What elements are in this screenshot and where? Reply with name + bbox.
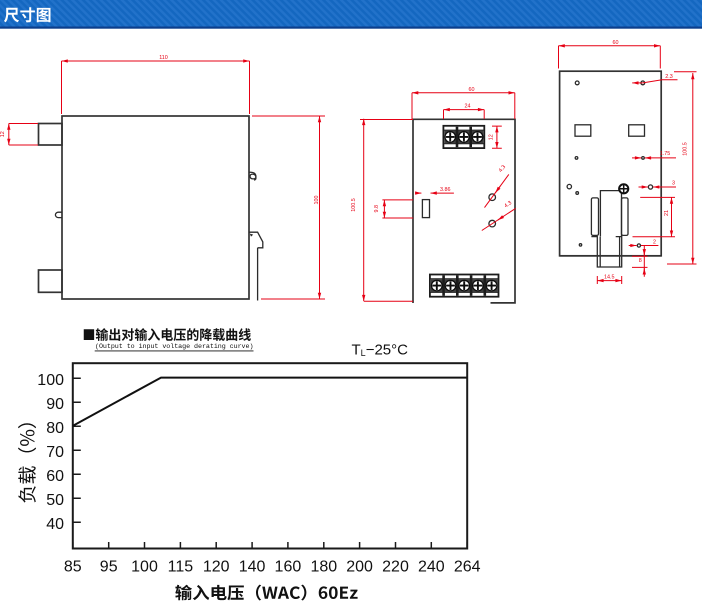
svg-text:220: 220 <box>382 558 409 575</box>
svg-text:8: 8 <box>639 258 642 264</box>
svg-text:12: 12 <box>489 134 495 140</box>
svg-text:60: 60 <box>613 40 619 46</box>
svg-text:21: 21 <box>664 210 670 216</box>
svg-text:100: 100 <box>314 196 320 205</box>
svg-text:50: 50 <box>46 492 64 509</box>
svg-text:12: 12 <box>0 131 6 137</box>
svg-text:9.8: 9.8 <box>374 205 380 213</box>
svg-text:120: 120 <box>203 558 230 575</box>
svg-text:40: 40 <box>46 516 64 533</box>
svg-text:TL−25°C: TL−25°C <box>352 341 409 358</box>
svg-text:100.5: 100.5 <box>683 142 689 156</box>
svg-text:14.5: 14.5 <box>604 274 615 280</box>
svg-text:100.5: 100.5 <box>351 198 357 212</box>
svg-text:100: 100 <box>131 558 158 575</box>
svg-text:4.3: 4.3 <box>503 200 513 209</box>
svg-text:2: 2 <box>653 239 656 245</box>
svg-text:90: 90 <box>46 396 64 413</box>
svg-text:80: 80 <box>46 420 64 437</box>
svg-text:240: 240 <box>418 558 445 575</box>
svg-text:200: 200 <box>346 558 373 575</box>
svg-text:85: 85 <box>64 558 82 575</box>
svg-text:70: 70 <box>46 444 64 461</box>
svg-text:264: 264 <box>454 558 481 575</box>
svg-text:3.86: 3.86 <box>440 187 451 193</box>
svg-text:115: 115 <box>168 558 194 575</box>
svg-text:160: 160 <box>275 558 302 575</box>
svg-text:2.3: 2.3 <box>665 74 673 80</box>
svg-text:24: 24 <box>465 103 471 109</box>
svg-text:140: 140 <box>239 558 266 575</box>
svg-text:(Output to input voltage derat: (Output to input voltage derating curve) <box>95 343 254 351</box>
svg-text:95: 95 <box>100 558 118 575</box>
svg-text:100: 100 <box>37 372 64 389</box>
svg-text:3: 3 <box>672 180 675 186</box>
svg-text:110: 110 <box>159 55 168 61</box>
svg-text:1.75: 1.75 <box>660 151 671 157</box>
svg-text:180: 180 <box>310 558 337 575</box>
svg-text:4.3: 4.3 <box>498 164 507 174</box>
svg-text:60: 60 <box>46 468 64 485</box>
svg-text:60: 60 <box>469 87 475 93</box>
